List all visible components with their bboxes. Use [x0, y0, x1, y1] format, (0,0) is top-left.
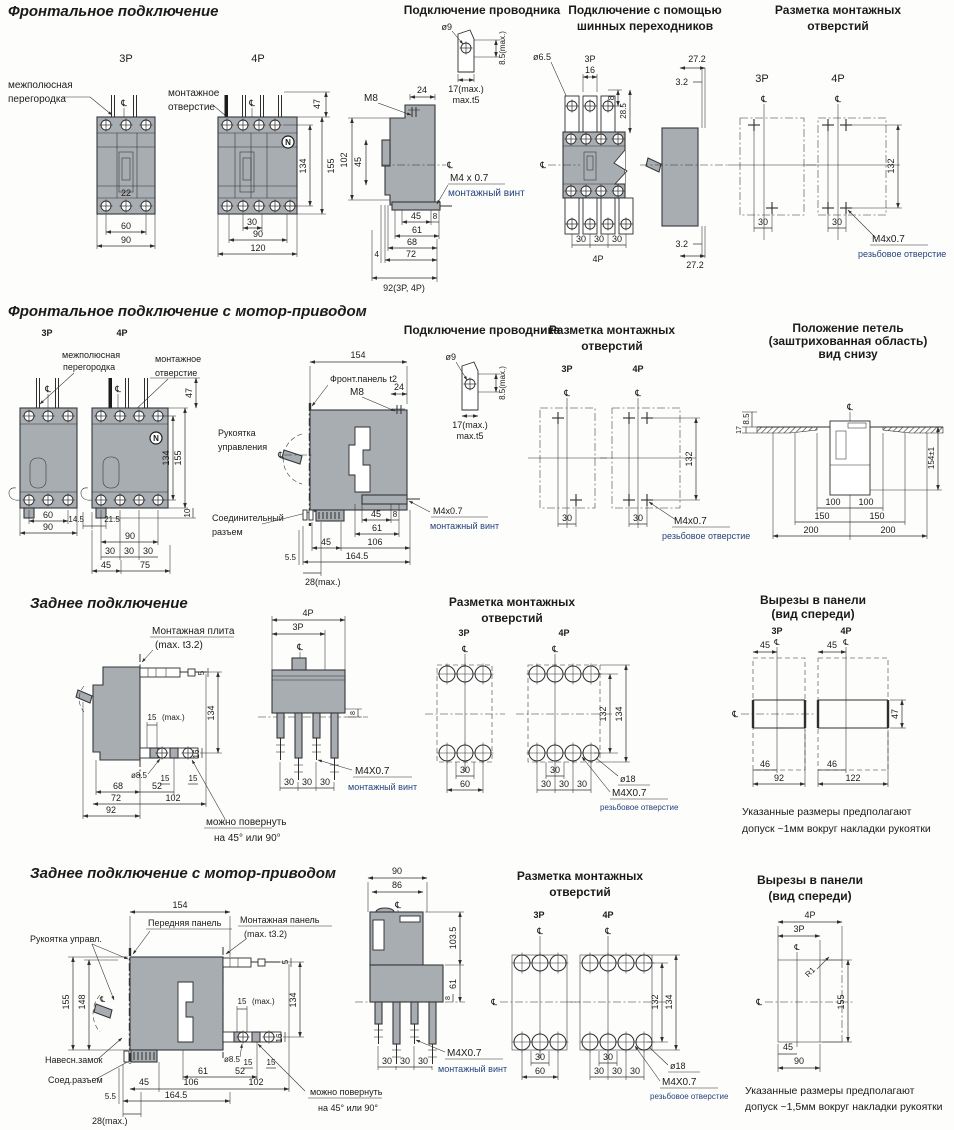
s3-holes-m4: M4X0.7 [612, 788, 647, 799]
section3-title: Заднее подключение [30, 595, 188, 612]
s3-holes-title-1: Разметка монтажных [449, 595, 575, 609]
s1-cond-t5: max.t5 [452, 95, 479, 105]
s3-front-view: 4P 3P ℄ 8 30 30 30 M4X0.7 монтажный винт [258, 608, 417, 792]
s1-3p-label: 3P [119, 53, 132, 65]
s4-lock-label: Навесн.замок [45, 1055, 102, 1065]
s3-holes-dia18: ø18 [620, 774, 636, 784]
s4-holes-30b: 30 [612, 1066, 622, 1076]
s4-front-61: 61 [448, 979, 458, 989]
s4-holes-132: 132 [650, 994, 660, 1009]
s3-front-m4: M4X0.7 [355, 766, 390, 777]
s1-side-dim-68: 68 [407, 237, 417, 247]
s1-conductor-connection: Подключение проводника ø9 8.5(max.) 17(m… [339, 3, 561, 293]
s4-side-52: 52 [235, 1066, 245, 1076]
s2-conductor-detail: Подключение проводника ø9 8.5(max.) 17(m… [404, 323, 561, 441]
s2-dim-75: 75 [140, 560, 150, 570]
s2-handle-label-2: управления [218, 442, 267, 452]
s4-side-134: 134 [288, 992, 298, 1007]
section-front-motor: Фронтальное подключение с мотор-приводом… [0, 300, 954, 590]
s2-hole-2: отверстие [155, 368, 197, 378]
s4-rotate-2: на 45° или 90° [318, 1103, 378, 1113]
s4-holes-cl4: ℄ [604, 926, 611, 936]
s3-cut-4p: 4P [840, 626, 851, 636]
s2-conn-label-2: разъем [212, 527, 243, 537]
s4-front-m4: M4X0.7 [447, 1048, 482, 1059]
s3-cut-cl4: ℄ [842, 638, 849, 647]
s2-hole-1: монтажное [155, 354, 201, 364]
s2-holes-cl3: ℄ [563, 388, 570, 398]
s2-4p-dim-155: 155 [173, 450, 183, 465]
s2-hinge-200b: 200 [880, 525, 895, 535]
s1-side-dim-61: 61 [412, 225, 422, 235]
s3-cut-3p-shape: ℄ 45 46 92 [731, 640, 815, 787]
s1-bus-centerline: ℄ [539, 160, 546, 170]
s2-cond-t5: max.t5 [456, 431, 483, 441]
s3-panel-cutouts: Вырезы в панели (вид спереди) 3P 4P ℄ ℄ … [731, 593, 931, 835]
s1-side-dim-8: 8 [433, 212, 438, 221]
s1-bus-title-1: Подключение с помощью [568, 3, 721, 17]
s2-3p-dim-90: 90 [43, 522, 53, 532]
s3-cut-note-2: допуск ~1мм вокруг накладки рукоятки [742, 823, 931, 835]
s3-cut-cl-left: ℄ [731, 709, 738, 719]
s4-holes-30c: 30 [630, 1066, 640, 1076]
s3-dim-15b: 15 [189, 774, 198, 783]
s1-holes-dim-30b: 30 [832, 217, 842, 227]
s4-cut-45: 45 [783, 1042, 793, 1052]
s4-holes-30a: 30 [594, 1066, 604, 1076]
s4-cut-4p: 4P [804, 910, 815, 920]
s4-cut-155: 155 [836, 994, 846, 1009]
s1-side-m8: M8 [364, 93, 378, 104]
s2-hinge-100a: 100 [825, 497, 840, 507]
s4-cut-title-1: Вырезы в панели [757, 873, 863, 887]
s3-dim-92: 92 [106, 805, 116, 815]
s1-bus-dim-30b: 30 [594, 234, 604, 244]
s3-holes-4p: 4P [558, 628, 569, 638]
s2-hinge-100b: 100 [858, 497, 873, 507]
s2-side-m4: M4x0.7 [433, 506, 463, 516]
s1-side-centerline: ℄ [446, 160, 453, 170]
section-rear-connection: Заднее подключение Монтажная плита (max.… [0, 590, 954, 862]
s2-holes-3p: 3P [561, 364, 572, 374]
s1-barrier-label-1: межполюсная [8, 80, 73, 91]
s4-mounting-holes: Разметка монтажных отверстий 3P 4P ℄ ℄ ℄… [490, 869, 729, 1101]
s1-cond-title: Подключение проводника [404, 3, 561, 17]
s4-side-102: 102 [248, 1077, 263, 1087]
s1-bus-dim-30a: 30 [576, 234, 586, 244]
s1-bus-dim-285: 28.5 [619, 103, 628, 119]
s1-4p-dim-47: 47 [312, 99, 322, 109]
s2-holes-132: 132 [684, 451, 694, 466]
s2-hinge-154: 154±1 [927, 446, 936, 469]
s3-dim-15: 15 [148, 713, 157, 722]
s1-3p-breaker: ℄ 22 60 90 [97, 95, 155, 249]
s2-holes-cl4: ℄ [634, 388, 641, 398]
s1-holes-m4: M4x0.7 [872, 234, 905, 245]
s3-holes-30-3p: 30 [460, 765, 470, 775]
s4-dia-85: ø8.5 [224, 1055, 241, 1064]
s2-hinge-150a: 150 [814, 511, 829, 521]
s2-4p-label: 4P [116, 328, 127, 338]
s1-4p-dim-90: 90 [253, 229, 263, 239]
s4-front-1035: 103.5 [448, 927, 458, 950]
s3-front-30c: 30 [320, 777, 330, 787]
s2-holes-4p: 4P [632, 364, 643, 374]
s2-hinge-85: 8.5 [742, 413, 751, 425]
s3-holes-cl4: ℄ [551, 644, 558, 654]
s4-holes-title-2: отверстий [549, 885, 610, 899]
s3-holes-134: 134 [614, 706, 624, 721]
s2-cond-85max: 8.5(max.) [498, 366, 507, 400]
s1-holes-cl4: ℄ [834, 94, 841, 104]
s3-cut-4p-shape: 45 47 46 122 [818, 640, 906, 787]
s2-front-views: 3P 4P межполюсная перегородка монтажное … [9, 328, 201, 574]
s4-handle-cl: ℄ [99, 995, 106, 1004]
s2-holes-m4: M4x0.7 [674, 516, 707, 527]
s3-holes-3p: 3P [458, 628, 469, 638]
s4-front-studs [374, 1002, 437, 1064]
s3-holes-cl3: ℄ [461, 644, 468, 654]
s2-side-dim-45a: 45 [371, 509, 381, 519]
s2-side-dim-8: 8 [393, 510, 398, 519]
s1-4p-label: 4P [251, 53, 264, 65]
s3-holes-60: 60 [460, 779, 470, 789]
s1-holes-m4sub: резьбовое отверстие [858, 249, 946, 259]
s3-holes-m4sub: резьбовое отверстие [600, 803, 679, 812]
s2-cond-17max: 17(max.) [452, 420, 488, 430]
s1-bus-dim-16: 16 [585, 65, 595, 75]
s1-mount-hole-label-1: монтажное [168, 88, 220, 99]
s1-3p-dim-60: 60 [121, 221, 131, 231]
s4-mpanel-label-1: Монтажная панель [240, 915, 320, 925]
s3-holes-30a: 30 [541, 779, 551, 789]
s4-cut-3p: 3P [793, 924, 804, 934]
s3-cut-46a: 46 [760, 759, 770, 769]
s1-side-dim-72: 72 [406, 249, 416, 259]
s2-dim-30b: 30 [124, 546, 134, 556]
s2-hinge-title-3: вид снизу [818, 347, 878, 361]
s2-hinge-position: Положение петель (заштрихованная область… [736, 321, 943, 540]
s1-side-m4sub: монтажный винт [448, 188, 525, 199]
s1-4p-dim-30: 30 [247, 217, 257, 227]
s4-holes-cl3: ℄ [536, 926, 543, 936]
section-rear-motor: Заднее подключение с мотор-приводом 154 … [0, 862, 954, 1130]
s2-handle-label-1: Рукоятка [218, 428, 256, 438]
section1-title: Фронтальное подключение [8, 3, 219, 20]
s1-side-dim-45v: 45 [353, 157, 363, 167]
s2-cond-title: Подключение проводника [404, 323, 561, 337]
s3-front-dim-8: 8 [350, 711, 357, 715]
s1-mount-hole-label-2: отверстие [168, 102, 215, 113]
s3-holes-132: 132 [598, 706, 608, 721]
s3-cut-note-1: Указанные размеры предполагают [742, 806, 912, 818]
s3-dim-68: 68 [113, 781, 123, 791]
s1-4p-dim-155: 155 [326, 158, 336, 173]
s2-dim-30a: 30 [105, 546, 115, 556]
s4-holes-dia18: ø18 [670, 1061, 686, 1071]
s4-cut-title-2: (вид спереди) [768, 889, 851, 903]
s4-cut-note-1: Указанные размеры предполагают [745, 1085, 915, 1097]
s2-side-dim-45b: 45 [321, 537, 331, 547]
s1-bus-dim-32b: 3.2 [675, 239, 688, 249]
s1-4p-breaker: ℄ N 47 134 155 30 [218, 92, 336, 257]
s2-side-dim-28: 28(max.) [305, 577, 341, 587]
s3-dim-15max: (max.) [162, 713, 185, 722]
s4-front-30c: 30 [418, 1056, 428, 1066]
s2-3p-dim-60: 60 [43, 510, 53, 520]
s1-bus-title-2: шинных переходников [577, 19, 713, 33]
s4-cut-90: 90 [794, 1056, 804, 1066]
s3-cut-46b: 46 [827, 759, 837, 769]
s2-holes-m4sub: резьбовое отверстие [662, 531, 750, 541]
s3-cut-92: 92 [774, 773, 784, 783]
s1-busbar-adapters: Подключение с помощью шинных переходнико… [533, 3, 730, 270]
s4-panel-cutout: Вырезы в панели (вид спереди) 4P 3P ℄ R1… [745, 873, 943, 1113]
s3-cut-cl3: ℄ [773, 638, 780, 647]
s1-holes-4p: 4P [831, 73, 844, 85]
s2-hinge-cl: ℄ [846, 402, 853, 412]
s2-holes-30a: 30 [562, 513, 572, 523]
s4-side-154: 154 [172, 900, 187, 910]
s2-4p-dim-47: 47 [184, 388, 194, 398]
s1-4p-neutral-mark: N [285, 138, 291, 147]
s2-hinge-title-2: (заштрихованная область) [769, 334, 928, 348]
s3-cut-45b: 45 [827, 640, 837, 650]
s4-holes-m4sub: резьбовое отверстие [650, 1092, 729, 1101]
s2-side-m4sub: монтажный винт [430, 521, 499, 531]
s4-mpanel-label-2: (max. t3.2) [244, 929, 287, 939]
s1-bus-dim-272b: 27.2 [686, 260, 704, 270]
s4-side-45: 45 [139, 1077, 149, 1087]
s1-holes-3p: 3P [755, 73, 768, 85]
s2-4p-dim-10: 10 [183, 508, 192, 517]
s1-holes-title-2: отверстий [807, 19, 868, 33]
s3-plate-label-2: (max. t3.2) [155, 640, 203, 651]
s3-dim-16: 16 [192, 749, 201, 758]
s2-hinge-150b: 150 [869, 511, 884, 521]
s4-side-15: 15 [238, 997, 247, 1006]
s4-holes-60: 60 [535, 1066, 545, 1076]
s4-holes-30-3p: 30 [535, 1052, 545, 1062]
s3-cut-title-2: (вид спереди) [771, 607, 854, 621]
s2-dim-90b: 90 [125, 531, 135, 541]
s1-cond-dim-85max: 8.5(max.) [498, 31, 507, 65]
s1-bus-3p: 3P [584, 54, 595, 64]
s1-cond-dim-17max: 17(max.) [448, 84, 484, 94]
s1-side-dim-102: 102 [339, 152, 349, 167]
s2-holes-title-2: отверстий [581, 339, 642, 353]
s2-4p-dim-134: 134 [161, 450, 171, 465]
section-front-connection: Фронтальное подключение 3P 4P межполюсна… [0, 0, 954, 300]
s4-handle-label: Рукоятка управл. [30, 934, 102, 944]
s4-cut-note-2: допуск ~1,5мм вокруг накладки рукоятки [745, 1101, 943, 1113]
s3-front-30b: 30 [302, 777, 312, 787]
s1-bus-4p: 4P [592, 254, 603, 264]
s4-conn-label: Соед.разъем [48, 1075, 103, 1085]
s3-dim-72: 72 [111, 793, 121, 803]
s4-side-15max: (max.) [252, 997, 275, 1006]
s1-3p-centerline-symbol: ℄ [120, 98, 127, 108]
s4-holes-134: 134 [664, 994, 674, 1009]
s4-side-148: 148 [77, 994, 87, 1009]
s1-holes-dim-30a: 30 [758, 217, 768, 227]
s2-hinge-title-1: Положение петель [792, 321, 903, 335]
s2-side-view: 154 Фронт.панель t2 M8 24 Рукоятка управ… [212, 350, 499, 587]
s4-front-m4sub: монтажный винт [438, 1064, 507, 1074]
s2-dim-215: 21.5 [104, 515, 120, 524]
s3-cut-3p: 3P [771, 626, 782, 636]
s1-cond-dia9: ø9 [441, 22, 452, 32]
s2-hinge-200a: 200 [803, 525, 818, 535]
s1-3p-dim-90: 90 [121, 235, 131, 245]
s4-side-55: 5.5 [105, 1092, 117, 1101]
s4-side-106: 106 [183, 1077, 198, 1087]
s4-cut-cl-left: ℄ [755, 997, 762, 1007]
s2-barrier-1: межполюсная [62, 350, 120, 360]
s4-front-cl: ℄ [394, 900, 401, 910]
s2-barrier-2: перегородка [63, 362, 115, 372]
s3-front-30a: 30 [284, 777, 294, 787]
s4-front-8: 8 [445, 996, 452, 1000]
s2-side-dim-1645: 164.5 [346, 551, 369, 561]
s3-front-3p: 3P [292, 622, 303, 632]
s2-dim-145: 14.5 [68, 515, 84, 524]
s2-holes-title-1: Разметка монтажных [549, 323, 675, 337]
s4-cut-r1: R1 [803, 965, 817, 979]
s2-side-dim-24: 24 [394, 382, 404, 392]
s3-side-view: Монтажная плита (max. t3.2) 5 134 15 (ma… [76, 626, 287, 844]
s4-holes-4p: 4P [602, 910, 613, 920]
s3-front-cl: ℄ [296, 642, 303, 652]
s4-side-155: 155 [61, 994, 71, 1009]
s2-side-fpanel: Фронт.панель t2 [330, 374, 397, 384]
s1-bus-dim-272t: 27.2 [688, 54, 706, 64]
s1-front-views: 3P 4P межполюсная перегородка монтажное … [8, 53, 336, 257]
s2-cond-dia9: ø9 [445, 352, 456, 362]
s2-side-dim-61: 61 [372, 523, 382, 533]
s2-3p-breaker: ℄ 60 90 [9, 378, 77, 536]
s1-holes-cl3: ℄ [760, 94, 767, 104]
s3-holes-30c: 30 [577, 779, 587, 789]
s2-4p-cl: ℄ [114, 384, 121, 394]
s1-3p-dim-22: 22 [121, 188, 131, 198]
s1-bus-side-view: 27.2 3.2 3.2 27.2 [640, 54, 730, 270]
s2-side-dim-55: 5.5 [285, 553, 297, 562]
s1-side-dim-45: 45 [411, 211, 421, 221]
s1-4p-dim-134: 134 [298, 158, 308, 173]
s4-holes-title-1: Разметка монтажных [517, 869, 643, 883]
s2-3p-cl: ℄ [44, 384, 51, 394]
s1-4p-centerline-symbol: ℄ [248, 98, 255, 108]
s4-cut-cl-top: ℄ [793, 943, 800, 952]
s2-hinge-17: 17 [736, 426, 743, 434]
s3-rotate-note-2: на 45° или 90° [214, 833, 281, 844]
s3-front-m4sub: монтажный винт [348, 782, 417, 792]
s1-side-view: M8 24 102 45 ℄ M4 x 0.7 монтажный винт 4… [339, 85, 525, 293]
s4-holes-m4: M4X0.7 [662, 1077, 697, 1088]
s4-holes-cl-left: ℄ [490, 997, 497, 1007]
s3-cut-47: 47 [890, 709, 900, 719]
s4-rotate-1: можно повернуть [310, 1087, 383, 1097]
s4-side-16: 16 [275, 1033, 284, 1042]
s1-bus-dim-8: 8 [607, 95, 616, 100]
s3-rotate-note-1: можно повернуть [206, 817, 287, 828]
s3-dia-85: ø8.5 [131, 771, 148, 780]
s3-dim-102: 102 [165, 793, 180, 803]
s1-bus-dim-32t: 3.2 [675, 77, 688, 87]
s2-3p-label: 3P [41, 328, 52, 338]
s3-cut-45a: 45 [760, 640, 770, 650]
s1-bus-dim-30c: 30 [612, 234, 622, 244]
s2-mounting-holes: Разметка монтажных отверстий 3P 4P ℄ ℄ 3… [528, 323, 750, 541]
s4-holes-3p: 3P [533, 910, 544, 920]
s3-cut-122: 122 [845, 773, 860, 783]
s4-side-61: 61 [198, 1066, 208, 1076]
s2-handle-cl: ℄ [277, 450, 284, 460]
s4-side-1645: 164.5 [165, 1090, 188, 1100]
s2-dim-30c: 30 [143, 546, 153, 556]
s1-side-dim-4: 4 [375, 250, 380, 259]
section4-title: Заднее подключение с мотор-приводом [30, 865, 336, 882]
s3-dim-5: 5 [197, 670, 206, 675]
s3-dim-52: 52 [152, 781, 162, 791]
section2-title: Фронтальное подключение с мотор-приводом [8, 303, 367, 320]
s4-side-28: 28(max.) [92, 1116, 128, 1126]
s1-holes-dim-132: 132 [886, 158, 896, 173]
s1-mounting-holes: Разметка монтажных отверстий 3P 4P ℄ ℄ 3… [728, 3, 946, 259]
s3-holes-30-4p: 30 [550, 765, 560, 775]
s4-front-30a: 30 [382, 1056, 392, 1066]
s4-front-view: 90 86 ℄ 103.5 61 8 30 30 30 M4X0.7 [355, 866, 507, 1074]
s4-front-86: 86 [392, 880, 402, 890]
s1-side-dim-92: 92(3P, 4P) [383, 283, 425, 293]
drawing-page: Фронтальное подключение 3P 4P межполюсна… [0, 0, 954, 1130]
s4-side-view: 154 Передняя панель Монтажная панель (ma… [30, 900, 383, 1126]
s3-mounting-holes: Разметка монтажных отверстий 3P 4P ℄ ℄ 3… [425, 595, 679, 812]
s4-side-15b: 15 [267, 1058, 276, 1067]
s3-holes-30b: 30 [559, 779, 569, 789]
s3-plate-label-1: Монтажная плита [152, 626, 235, 637]
s1-terminal-detail: ø9 8.5(max.) 17(max.) max.t5 [441, 22, 507, 105]
s1-bus-dia65: ø6.5 [533, 52, 551, 62]
s3-dim-134: 134 [206, 705, 216, 720]
s1-side-dim-24: 24 [417, 85, 427, 95]
s2-holes-30b: 30 [633, 513, 643, 523]
s3-front-studs [276, 713, 339, 780]
s1-barrier-label-2: перегородка [8, 94, 66, 105]
s4-holes-30-4p: 30 [603, 1052, 613, 1062]
s4-front-30b: 30 [400, 1056, 410, 1066]
s2-side-dim-106: 106 [367, 537, 382, 547]
s3-cut-title-1: Вырезы в панели [760, 593, 866, 607]
s1-holes-title-1: Разметка монтажных [775, 3, 901, 17]
s4-fpanel-label: Передняя панель [148, 918, 222, 928]
s2-side-m8: M8 [350, 387, 364, 398]
s3-holes-title-2: отверстий [481, 611, 542, 625]
s2-4p-n: N [153, 434, 159, 443]
s2-4p-breaker: ℄ N 134 155 47 10 14.5 21 [68, 378, 200, 574]
s1-4p-dim-120: 120 [250, 243, 265, 253]
s3-front-4p: 4P [302, 608, 313, 618]
s2-side-dim-154: 154 [350, 350, 365, 360]
s4-front-90: 90 [392, 866, 402, 876]
s2-dim-45: 45 [101, 560, 111, 570]
s1-side-m4: M4 x 0.7 [450, 173, 489, 184]
